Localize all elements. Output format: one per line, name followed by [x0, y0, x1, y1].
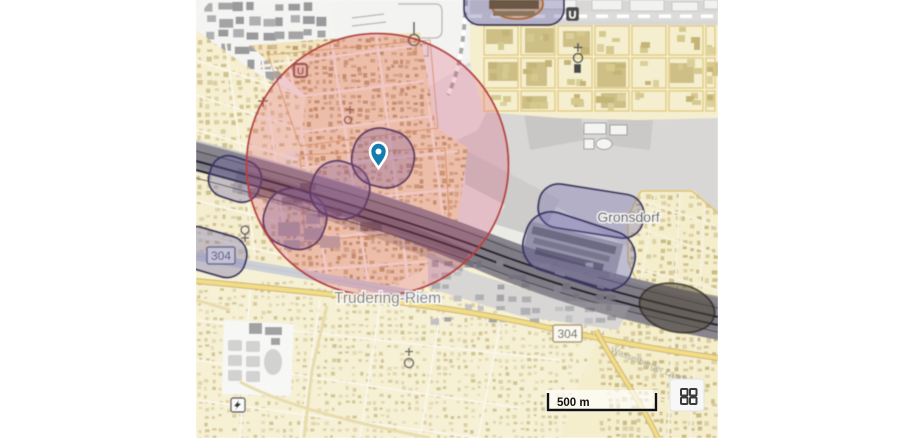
svg-text:Gronsdorf: Gronsdorf	[597, 209, 659, 225]
svg-text:500 m: 500 m	[557, 397, 590, 409]
svg-text:U: U	[569, 10, 577, 22]
svg-text:304: 304	[557, 327, 577, 341]
svg-text:Trudering-Riem: Trudering-Riem	[334, 290, 441, 307]
